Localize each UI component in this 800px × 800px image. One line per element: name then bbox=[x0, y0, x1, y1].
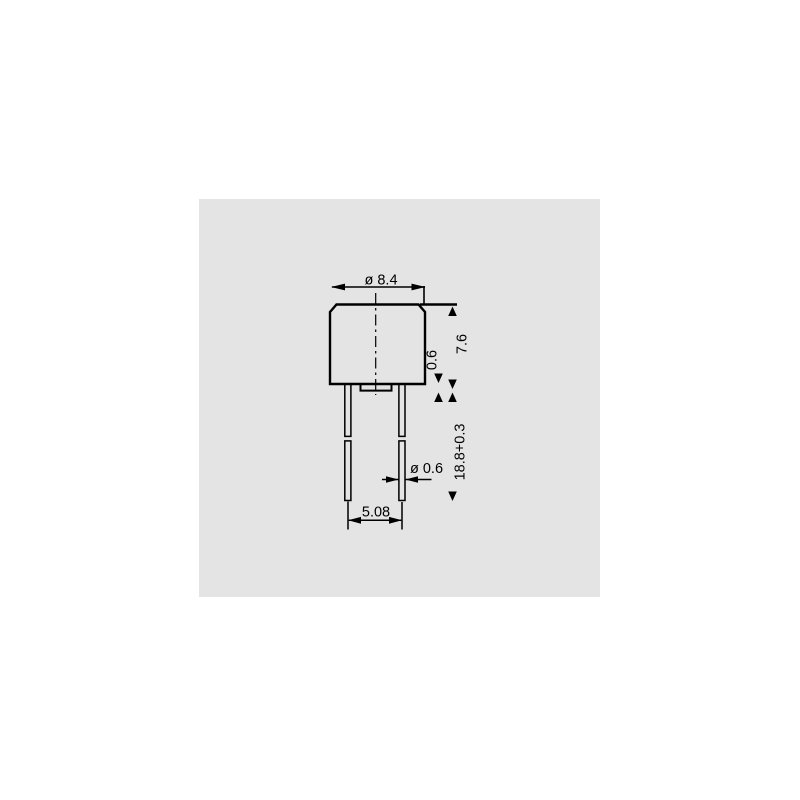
page: ø 8.4 0.6 7.6 18.8+0.3 ø 0.6 bbox=[0, 0, 800, 800]
step-height-label: 0.6 bbox=[425, 350, 441, 370]
lead-pitch-label: 5.08 bbox=[362, 505, 390, 521]
lead-length-label: 18.8+0.3 bbox=[453, 424, 469, 481]
body-diameter-label: ø 8.4 bbox=[364, 273, 397, 289]
body-height-label: 7.6 bbox=[455, 334, 471, 354]
lead-diameter-label: ø 0.6 bbox=[410, 461, 443, 477]
technical-dimension-drawing: ø 8.4 0.6 7.6 18.8+0.3 ø 0.6 bbox=[0, 0, 800, 800]
